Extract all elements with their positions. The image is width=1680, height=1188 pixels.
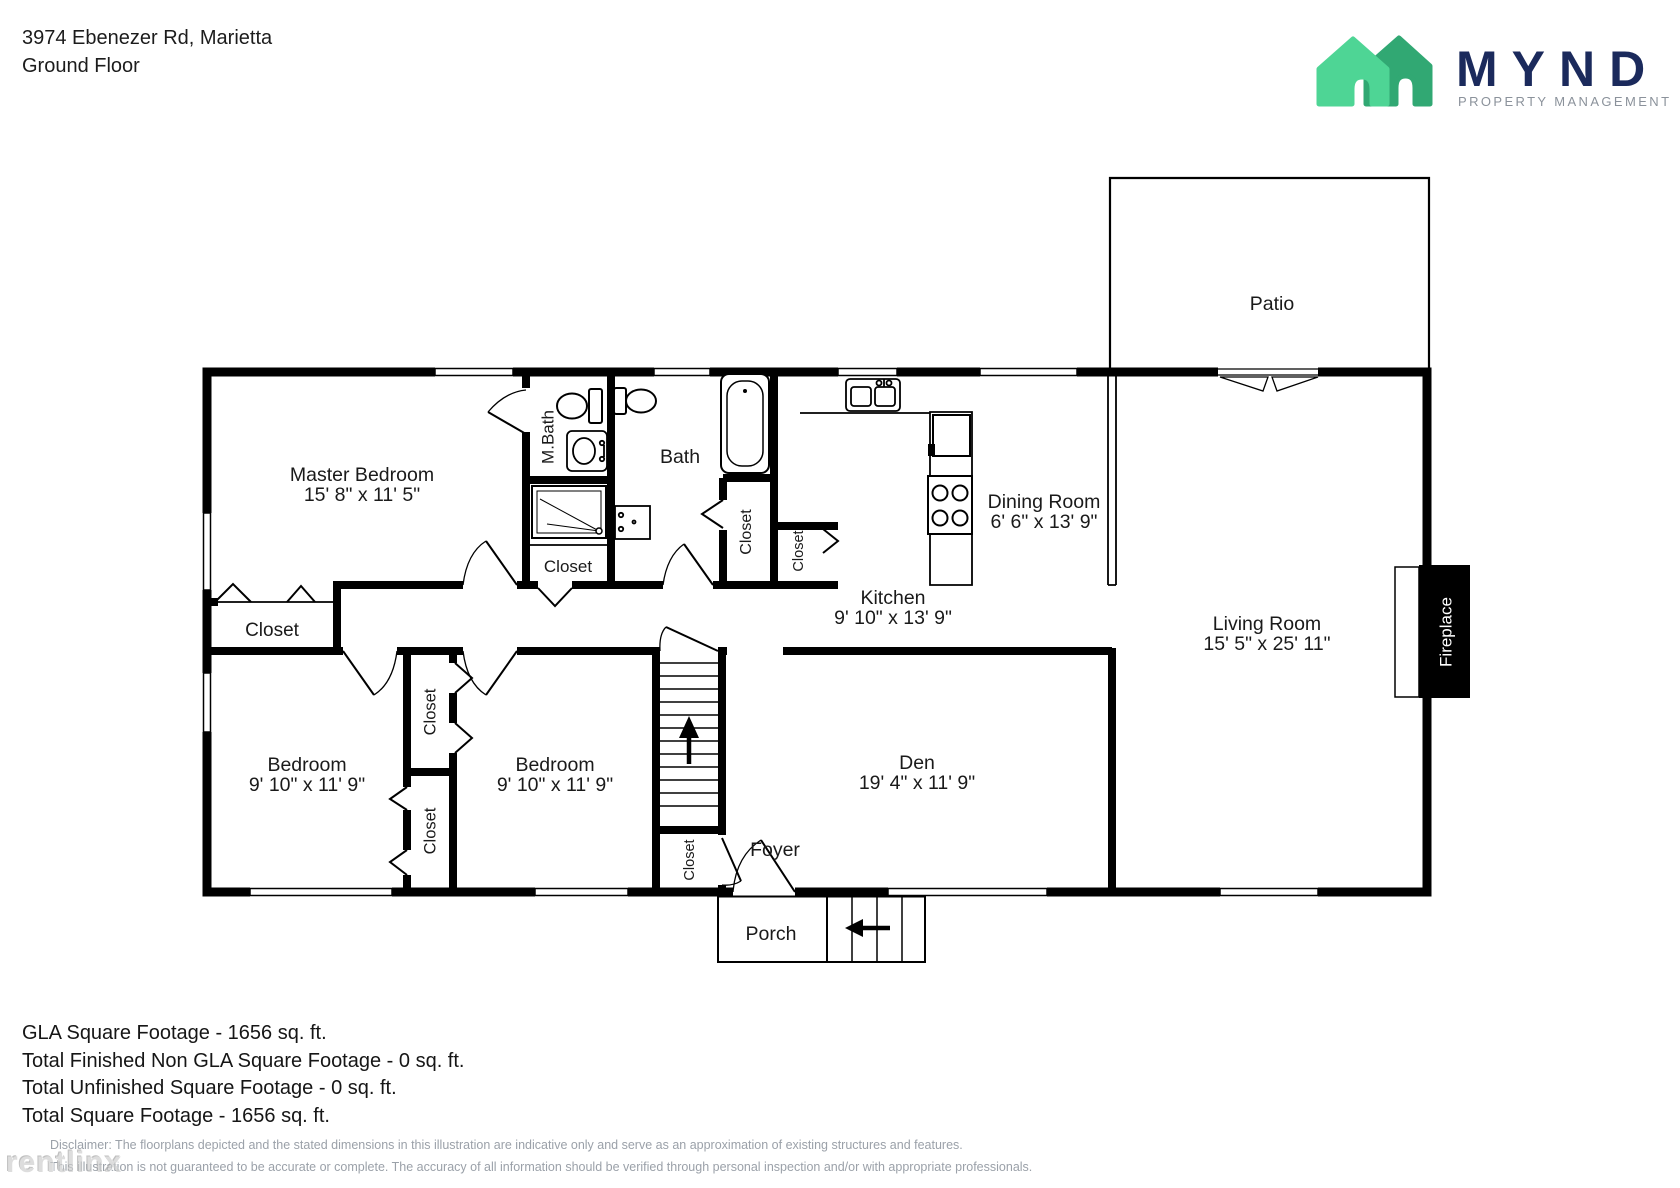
summary-line-unfinished: Total Unfinished Square Footage - 0 sq. …	[22, 1075, 464, 1103]
summary-line-total: Total Square Footage - 1656 sq. ft.	[22, 1103, 464, 1131]
room-label-kitchen: Kitchen	[860, 587, 925, 609]
sink-icon-mbath	[567, 431, 607, 471]
room-label-den: Den	[899, 752, 935, 774]
closet-label-hall: Closet	[544, 557, 592, 576]
room-label-living: Living Room	[1213, 613, 1321, 635]
room-label-mbath: M.Bath	[538, 410, 557, 464]
floorplan-drawing: Fireplace Master Bedroom 15' 8" x 11' 5"…	[0, 0, 1680, 1188]
closet-label-bedroom2: Closet	[421, 688, 439, 735]
shower-icon	[532, 486, 606, 538]
fireplace-label: Fireplace	[1436, 597, 1455, 667]
room-label-bedroom-2: Bedroom	[515, 754, 594, 776]
room-dims-bedroom-2: 9' 10" x 11' 9"	[497, 774, 613, 796]
room-label-dining: Dining Room	[988, 491, 1101, 513]
room-label-foyer: Foyer	[750, 839, 800, 861]
toilet-icon-bath	[614, 388, 656, 414]
room-label-patio: Patio	[1250, 293, 1295, 315]
toilet-icon-mbath	[557, 389, 602, 423]
room-label-bath: Bath	[660, 446, 700, 468]
closet-label-bath: Closet	[738, 509, 755, 555]
patio-door	[1218, 369, 1318, 391]
stove-icon	[928, 476, 972, 534]
closet-label-foyer: Closet	[682, 839, 698, 880]
square-footage-summary: GLA Square Footage - 1656 sq. ft. Total …	[22, 1020, 464, 1130]
kitchen-sink-icon	[846, 379, 900, 411]
fridge-icon	[928, 415, 970, 456]
disclaimer-line-2: This illustration is not guaranteed to b…	[50, 1156, 1032, 1178]
half-wall	[1108, 377, 1116, 586]
disclaimer-line-1: Disclaimer: The floorplans depicted and …	[50, 1134, 1032, 1156]
closet-label-master: Closet	[245, 620, 300, 641]
closet-label-bedroom1: Closet	[421, 807, 439, 854]
room-label-bedroom-1: Bedroom	[267, 754, 346, 776]
room-label-master-bedroom: Master Bedroom	[290, 464, 434, 486]
fireplace: Fireplace	[1395, 565, 1470, 698]
floorplan-page: 3974 Ebenezer Rd, Marietta Ground Floor …	[0, 0, 1680, 1188]
room-dims-master-bedroom: 15' 8" x 11' 5"	[304, 484, 420, 506]
sink-icon-bath	[615, 506, 650, 539]
room-dims-den: 19' 4" x 11' 9"	[859, 772, 975, 794]
summary-line-non-gla: Total Finished Non GLA Square Footage - …	[22, 1048, 464, 1076]
bathtub-icon	[721, 374, 769, 473]
room-label-porch: Porch	[746, 923, 797, 945]
room-dims-kitchen: 9' 10" x 13' 9"	[834, 607, 952, 629]
summary-line-gla: GLA Square Footage - 1656 sq. ft.	[22, 1020, 464, 1048]
room-dims-dining: 6' 6" x 13' 9"	[991, 511, 1098, 533]
rentlinx-watermark: rentlinx	[6, 1146, 122, 1180]
disclaimer: Disclaimer: The floorplans depicted and …	[50, 1134, 1032, 1178]
patio-outline	[1110, 178, 1429, 368]
closet-label-kitchen: Closet	[791, 530, 807, 571]
room-dims-bedroom-1: 9' 10" x 11' 9"	[249, 774, 365, 796]
room-dims-living: 15' 5" x 25' 11"	[1203, 633, 1330, 655]
stairs-up-arrow-icon	[679, 716, 699, 764]
